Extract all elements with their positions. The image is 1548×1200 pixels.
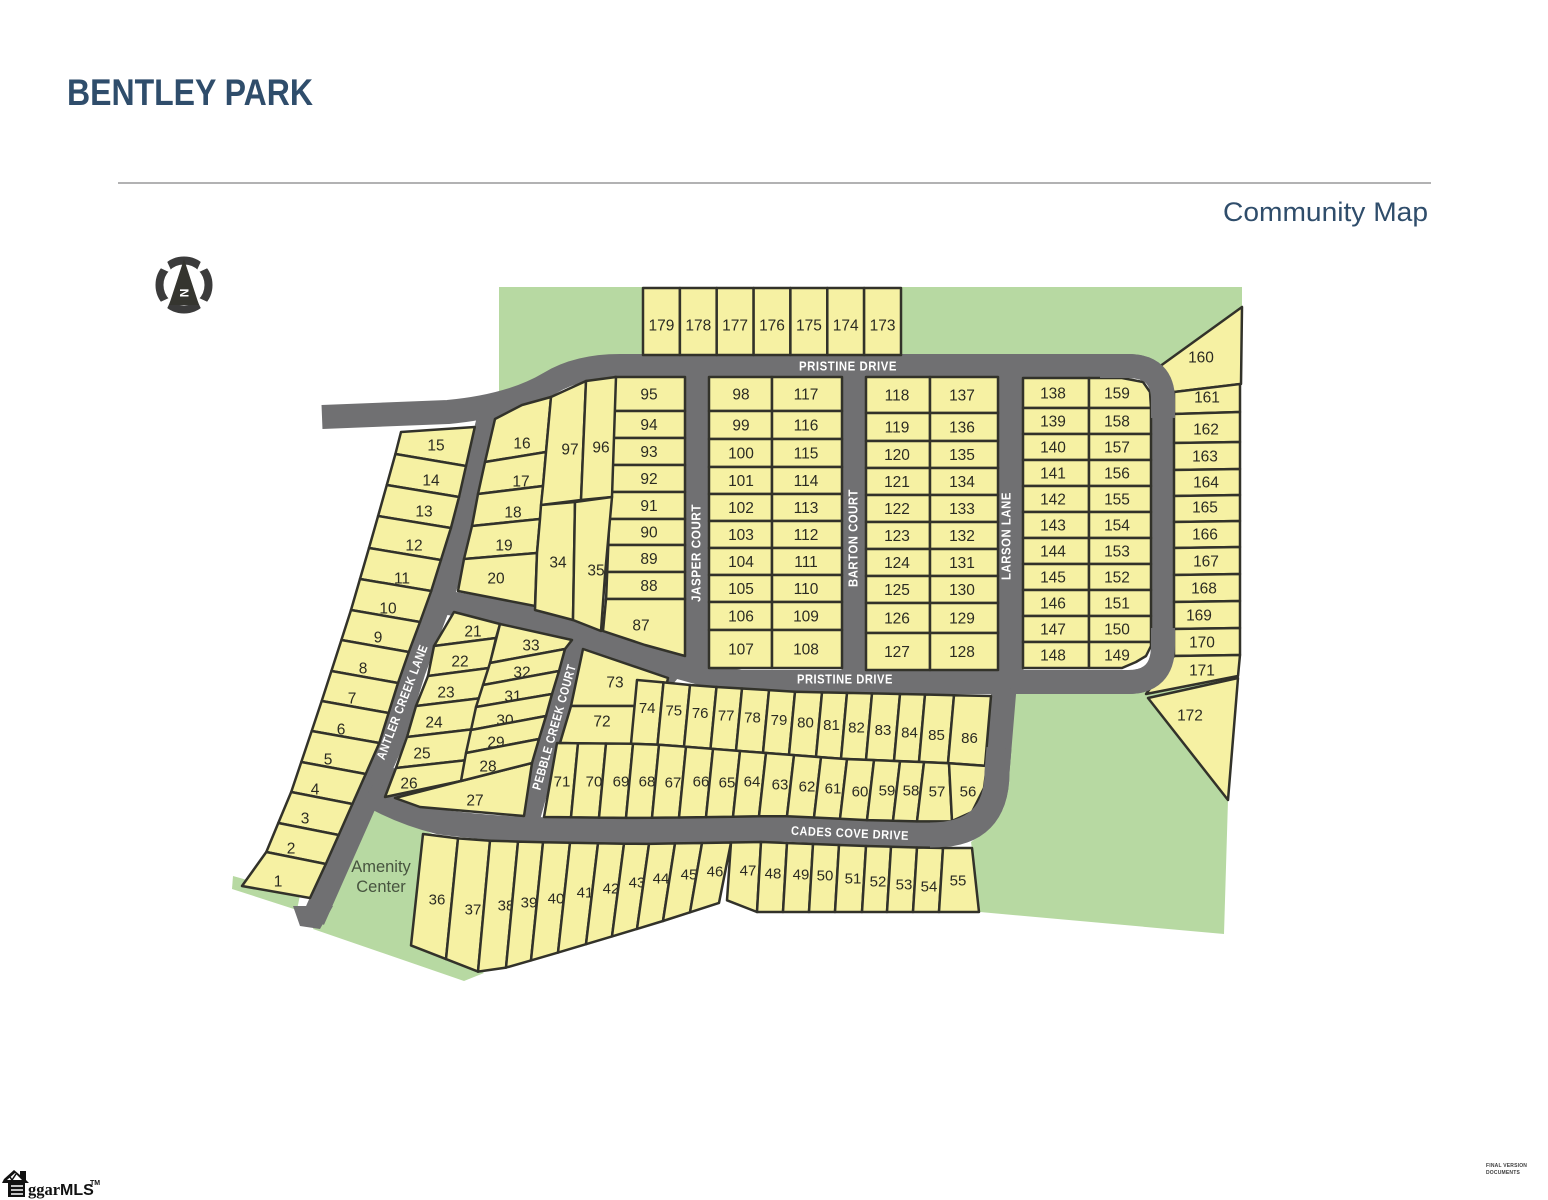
svg-text:36: 36 (429, 891, 446, 908)
svg-text:165: 165 (1192, 499, 1218, 516)
svg-text:102: 102 (728, 500, 754, 517)
svg-text:160: 160 (1188, 349, 1214, 366)
svg-text:12: 12 (405, 537, 422, 554)
svg-text:65: 65 (719, 774, 736, 791)
svg-text:69: 69 (613, 773, 630, 790)
svg-text:122: 122 (884, 501, 910, 518)
svg-text:101: 101 (728, 473, 754, 490)
svg-text:52: 52 (870, 873, 887, 890)
svg-text:154: 154 (1104, 517, 1130, 534)
svg-text:70: 70 (586, 773, 603, 790)
svg-text:126: 126 (884, 610, 910, 627)
svg-text:173: 173 (870, 317, 896, 334)
svg-text:176: 176 (759, 317, 785, 334)
svg-text:BENTLEY PARK: BENTLEY PARK (67, 72, 313, 113)
svg-text:57: 57 (929, 783, 946, 800)
svg-text:28: 28 (479, 758, 496, 775)
svg-text:93: 93 (640, 444, 657, 461)
svg-text:ggar: ggar (28, 1180, 60, 1199)
svg-text:157: 157 (1104, 439, 1130, 456)
svg-text:140: 140 (1040, 439, 1066, 456)
svg-text:115: 115 (794, 445, 819, 462)
svg-text:125: 125 (884, 582, 910, 599)
svg-text:23: 23 (437, 684, 454, 701)
svg-text:119: 119 (885, 419, 910, 436)
svg-text:175: 175 (796, 317, 822, 334)
svg-text:100: 100 (728, 445, 754, 462)
svg-text:80: 80 (797, 715, 814, 732)
svg-text:50: 50 (817, 867, 834, 884)
svg-text:129: 129 (949, 610, 975, 627)
svg-text:147: 147 (1040, 621, 1066, 638)
svg-text:124: 124 (884, 555, 910, 572)
svg-text:87: 87 (632, 617, 649, 634)
svg-text:153: 153 (1104, 543, 1130, 560)
svg-text:114: 114 (794, 473, 819, 490)
svg-text:144: 144 (1040, 543, 1066, 560)
svg-text:73: 73 (606, 674, 623, 691)
svg-text:155: 155 (1104, 491, 1130, 508)
svg-text:164: 164 (1193, 474, 1219, 491)
svg-text:105: 105 (728, 581, 754, 598)
svg-text:108: 108 (793, 641, 819, 658)
svg-text:48: 48 (765, 865, 782, 882)
svg-text:138: 138 (1040, 385, 1066, 402)
svg-text:20: 20 (487, 570, 505, 587)
svg-text:116: 116 (794, 417, 819, 434)
svg-text:172: 172 (1177, 707, 1203, 724)
svg-text:90: 90 (640, 524, 658, 541)
svg-text:103: 103 (728, 527, 754, 544)
svg-text:78: 78 (744, 710, 761, 727)
svg-text:76: 76 (692, 705, 709, 722)
svg-text:143: 143 (1040, 517, 1066, 534)
svg-text:106: 106 (728, 608, 754, 625)
svg-text:Center: Center (356, 878, 406, 896)
svg-text:123: 123 (884, 528, 910, 545)
svg-text:72: 72 (593, 713, 610, 730)
svg-text:136: 136 (949, 419, 975, 436)
svg-text:81: 81 (823, 717, 840, 734)
svg-text:53: 53 (896, 876, 913, 893)
svg-text:PRISTINE DRIVE: PRISTINE DRIVE (799, 359, 897, 373)
svg-text:24: 24 (425, 714, 443, 731)
svg-text:56: 56 (960, 783, 977, 800)
svg-text:DOCUMENTS: DOCUMENTS (1486, 1170, 1520, 1176)
svg-text:14: 14 (422, 472, 440, 489)
svg-text:110: 110 (794, 581, 819, 598)
svg-text:39: 39 (521, 894, 538, 911)
svg-text:170: 170 (1189, 634, 1215, 651)
svg-text:113: 113 (794, 500, 819, 517)
svg-text:128: 128 (949, 644, 975, 661)
svg-text:99: 99 (732, 417, 749, 434)
svg-text:19: 19 (495, 537, 512, 554)
svg-text:161: 161 (1194, 389, 1220, 406)
svg-text:148: 148 (1040, 647, 1066, 664)
svg-text:49: 49 (793, 866, 810, 883)
svg-text:22: 22 (451, 653, 468, 670)
svg-text:162: 162 (1193, 421, 1219, 438)
svg-text:TM: TM (90, 1180, 100, 1187)
svg-text:130: 130 (949, 582, 975, 599)
svg-text:71: 71 (554, 773, 571, 790)
svg-text:146: 146 (1040, 595, 1066, 612)
svg-text:34: 34 (549, 554, 567, 571)
svg-text:16: 16 (513, 435, 530, 452)
svg-text:77: 77 (718, 707, 735, 724)
svg-text:149: 149 (1104, 647, 1130, 664)
svg-text:27: 27 (466, 792, 483, 809)
svg-text:85: 85 (928, 727, 945, 744)
svg-text:8: 8 (359, 660, 368, 677)
svg-text:159: 159 (1104, 385, 1130, 402)
svg-text:83: 83 (875, 722, 892, 739)
svg-text:167: 167 (1193, 553, 1219, 570)
svg-text:40: 40 (548, 890, 565, 907)
svg-text:Amenity: Amenity (351, 858, 411, 876)
svg-text:Community Map: Community Map (1223, 197, 1428, 227)
svg-text:BARTON COURT: BARTON COURT (846, 489, 860, 587)
svg-text:133: 133 (949, 501, 975, 518)
svg-text:68: 68 (639, 773, 656, 790)
svg-text:60: 60 (852, 783, 869, 800)
svg-text:82: 82 (848, 719, 865, 736)
svg-text:3: 3 (301, 810, 310, 827)
svg-text:PRISTINE DRIVE: PRISTINE DRIVE (797, 672, 893, 686)
svg-text:FINAL VERSION: FINAL VERSION (1486, 1163, 1527, 1169)
svg-text:96: 96 (592, 439, 609, 456)
svg-text:150: 150 (1104, 621, 1130, 638)
svg-text:54: 54 (921, 878, 938, 895)
svg-text:MLS: MLS (60, 1182, 94, 1199)
svg-text:25: 25 (413, 745, 430, 762)
svg-text:2: 2 (287, 840, 296, 857)
svg-text:109: 109 (793, 608, 819, 625)
svg-text:26: 26 (400, 775, 417, 792)
svg-text:139: 139 (1040, 413, 1066, 430)
svg-text:75: 75 (665, 702, 682, 719)
svg-text:97: 97 (561, 441, 578, 458)
svg-text:35: 35 (587, 562, 604, 579)
svg-text:67: 67 (665, 774, 682, 791)
svg-text:156: 156 (1104, 465, 1130, 482)
svg-text:N: N (177, 289, 191, 298)
svg-text:134: 134 (949, 474, 975, 491)
svg-text:33: 33 (522, 637, 539, 654)
svg-text:168: 168 (1191, 580, 1217, 597)
svg-text:145: 145 (1040, 569, 1066, 586)
svg-text:177: 177 (722, 317, 748, 334)
svg-text:74: 74 (639, 700, 656, 717)
svg-text:92: 92 (640, 471, 657, 488)
svg-text:112: 112 (794, 527, 819, 544)
svg-text:174: 174 (833, 317, 859, 334)
svg-text:44: 44 (653, 870, 670, 887)
svg-text:88: 88 (640, 578, 657, 595)
svg-text:94: 94 (640, 417, 658, 434)
svg-text:58: 58 (903, 782, 920, 799)
svg-text:47: 47 (740, 862, 757, 879)
svg-text:18: 18 (504, 504, 521, 521)
svg-text:63: 63 (772, 776, 789, 793)
svg-text:1: 1 (274, 873, 283, 890)
svg-text:121: 121 (884, 474, 910, 491)
svg-text:46: 46 (707, 863, 724, 880)
svg-text:132: 132 (949, 528, 975, 545)
svg-text:9: 9 (374, 629, 383, 646)
svg-text:166: 166 (1192, 526, 1218, 543)
svg-text:JASPER COURT: JASPER COURT (689, 504, 703, 602)
svg-text:107: 107 (728, 641, 754, 658)
svg-text:141: 141 (1040, 465, 1066, 482)
svg-text:152: 152 (1104, 569, 1130, 586)
svg-text:64: 64 (744, 773, 761, 790)
svg-text:120: 120 (884, 447, 910, 464)
svg-text:179: 179 (648, 317, 674, 334)
svg-text:95: 95 (640, 386, 657, 403)
svg-text:84: 84 (901, 724, 918, 741)
svg-text:55: 55 (950, 872, 967, 889)
svg-text:158: 158 (1104, 413, 1130, 430)
svg-text:127: 127 (884, 644, 910, 661)
svg-text:163: 163 (1192, 448, 1218, 465)
svg-text:61: 61 (825, 780, 842, 797)
svg-text:91: 91 (640, 498, 657, 515)
svg-text:137: 137 (949, 387, 975, 404)
svg-text:178: 178 (685, 317, 711, 334)
svg-text:104: 104 (728, 554, 754, 571)
svg-text:37: 37 (465, 901, 482, 918)
svg-text:98: 98 (732, 386, 749, 403)
svg-text:21: 21 (464, 623, 481, 640)
svg-text:66: 66 (693, 773, 710, 790)
svg-text:86: 86 (961, 730, 978, 747)
svg-text:LARSON LANE: LARSON LANE (999, 492, 1013, 580)
svg-text:59: 59 (879, 782, 896, 799)
svg-text:79: 79 (771, 712, 788, 729)
svg-text:15: 15 (427, 437, 444, 454)
svg-text:118: 118 (885, 387, 910, 404)
svg-text:169: 169 (1186, 607, 1212, 624)
svg-text:131: 131 (949, 555, 975, 572)
svg-text:135: 135 (949, 447, 975, 464)
svg-text:111: 111 (794, 554, 818, 571)
svg-text:171: 171 (1189, 662, 1215, 679)
svg-text:151: 151 (1104, 595, 1130, 612)
svg-text:89: 89 (640, 551, 657, 568)
svg-text:142: 142 (1040, 491, 1066, 508)
svg-text:13: 13 (415, 503, 432, 520)
svg-text:62: 62 (799, 778, 816, 795)
svg-text:51: 51 (845, 870, 862, 887)
svg-text:117: 117 (794, 386, 819, 403)
